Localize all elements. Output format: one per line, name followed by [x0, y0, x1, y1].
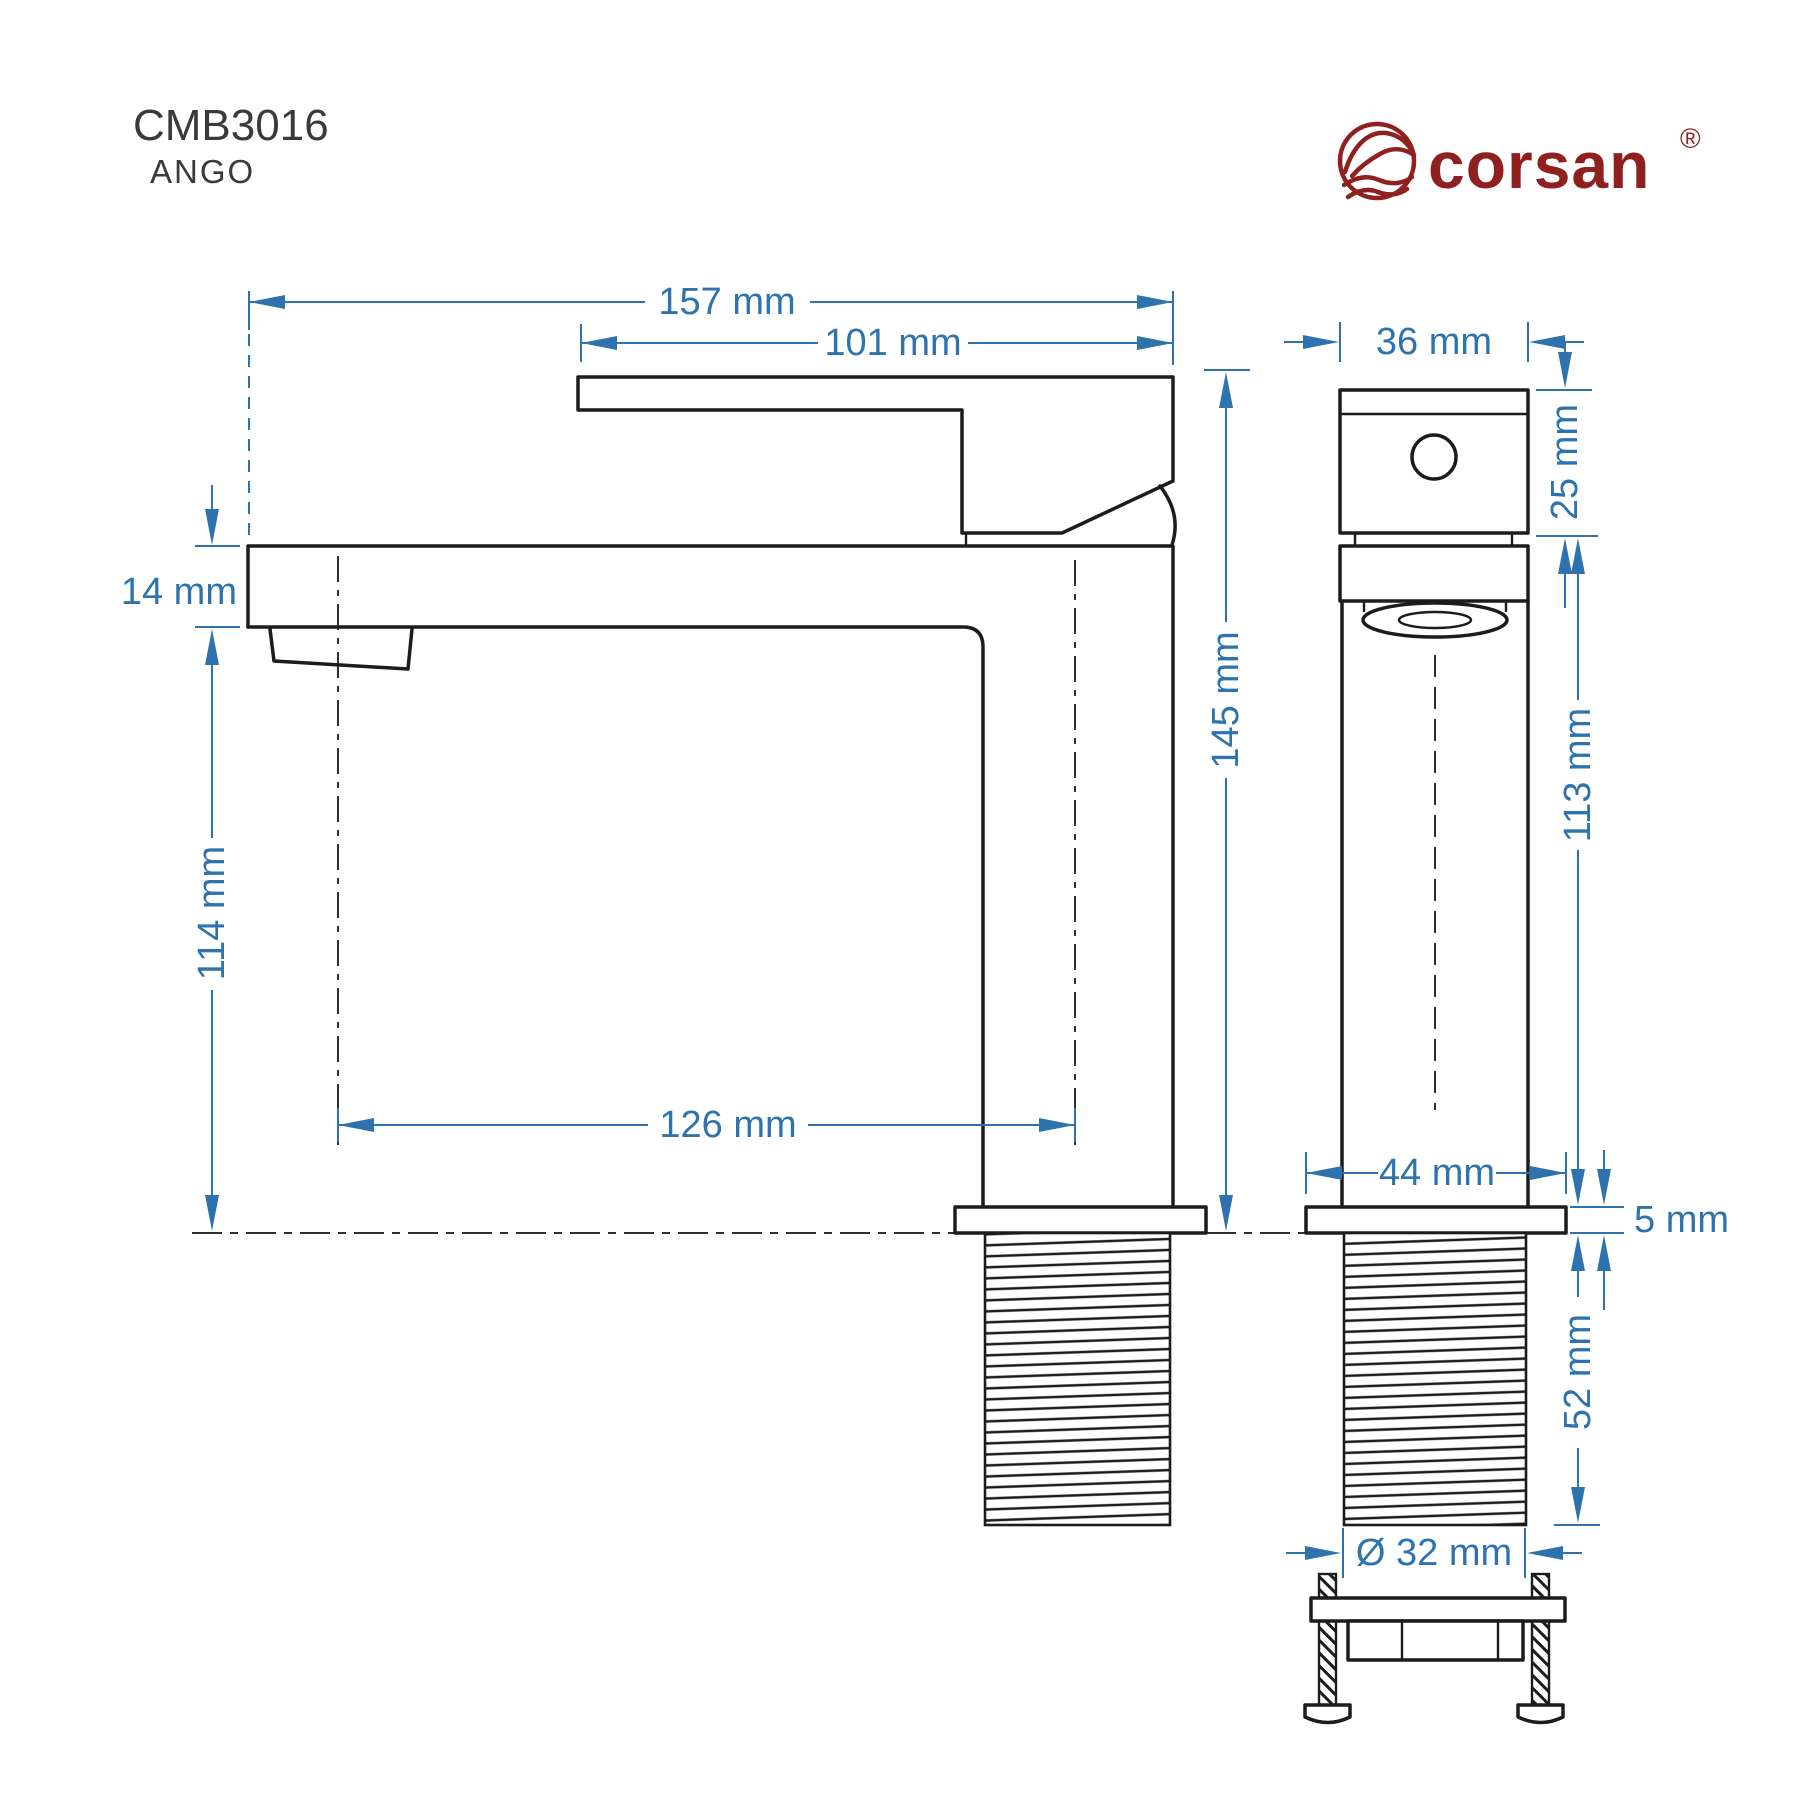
- dimension-label-thread-length: 52 mm: [1557, 1314, 1599, 1430]
- page-title-model: CMB3016: [133, 101, 329, 150]
- dimension-label-spout-thickness: 14 mm: [121, 571, 237, 613]
- dimension-thread-diameter: Ø 32 mm: [1286, 1528, 1582, 1578]
- screw-head: [1518, 1705, 1563, 1723]
- faucet-front-view: [248, 377, 1206, 1525]
- technical-drawing-canvas: CMB3016 ANGO corsan ®: [0, 0, 1800, 1800]
- wave-icon: [1352, 149, 1414, 176]
- dimension-spout-offset: 126 mm: [338, 1104, 1075, 1146]
- base-flange-front: [955, 1207, 1206, 1233]
- dimension-label-handle-block-height: 25 mm: [1544, 404, 1586, 520]
- handle-pivot-arc: [1160, 486, 1175, 545]
- mounting-stud: [1319, 1574, 1336, 1705]
- dimension-label-body-width: 36 mm: [1376, 321, 1492, 363]
- dimension-overall-height: 145 mm: [1204, 370, 1250, 1231]
- dimension-label-spout-offset: 126 mm: [659, 1104, 796, 1146]
- wave-icon: [1344, 177, 1412, 185]
- centerlines: [192, 556, 1435, 1233]
- mounting-nut: [1348, 1621, 1523, 1660]
- dimension-handle-length: 101 mm: [581, 322, 1173, 364]
- screw-head: [1305, 1705, 1350, 1723]
- dimension-label-body-height: 113 mm: [1557, 708, 1599, 842]
- dimension-handle-block-height: 25 mm: [1536, 342, 1598, 608]
- dimension-spout-thickness: 14 mm: [121, 485, 240, 627]
- dimension-body-height: 113 mm: [1557, 538, 1599, 1205]
- page-title-series: ANGO: [150, 153, 255, 190]
- dimension-label-base-plate-thickness: 5 mm: [1634, 1199, 1729, 1241]
- dimension-label-overall-height: 145 mm: [1205, 631, 1247, 768]
- handle-lever: [578, 377, 1173, 533]
- brand-name: corsan: [1428, 128, 1650, 202]
- handle-cap-side: [1340, 390, 1528, 533]
- dimension-label-spout-height: 114 mm: [191, 846, 233, 980]
- spout-underside: [248, 627, 983, 1207]
- dimension-label-overall-length: 157 mm: [658, 281, 795, 323]
- dimension-spout-height: 114 mm: [191, 629, 233, 1231]
- handle-pin: [1412, 435, 1456, 479]
- aerator-outlet: [270, 629, 412, 669]
- brand-logo: corsan ®: [1340, 123, 1701, 202]
- dimension-label-handle-length: 101 mm: [824, 322, 961, 364]
- threaded-shank-front: [985, 1233, 1170, 1525]
- dimension-thread-length: 52 mm: [1554, 1235, 1600, 1525]
- mounting-hardware: [1305, 1574, 1565, 1723]
- mounting-stud: [1532, 1574, 1549, 1705]
- collar-side: [1340, 546, 1528, 601]
- dimension-label-thread-diameter: Ø 32 mm: [1356, 1532, 1512, 1574]
- base-flange-side: [1306, 1207, 1566, 1233]
- dimension-label-base-width: 44 mm: [1379, 1152, 1495, 1194]
- mounting-washer: [1311, 1598, 1565, 1621]
- dimension-base-plate-thickness: 5 mm: [1570, 1150, 1729, 1310]
- threaded-shank-side: [1344, 1233, 1526, 1525]
- dimension-body-width: 36 mm: [1284, 321, 1584, 363]
- registered-trademark: ®: [1680, 123, 1701, 154]
- aerator-face-outer: [1363, 603, 1507, 637]
